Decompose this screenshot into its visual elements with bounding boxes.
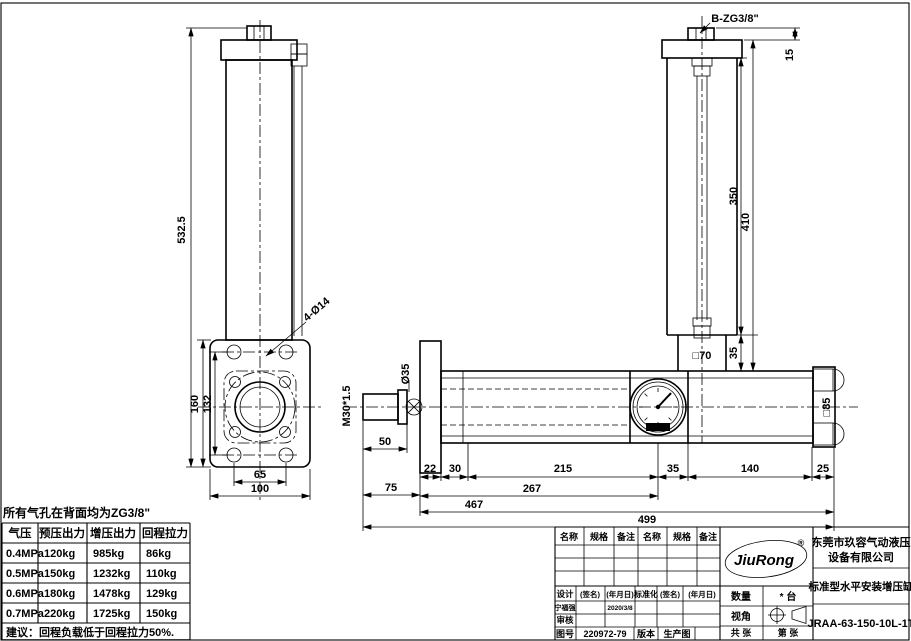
table-footer-note: 建议：回程负载低于回程拉力50%.	[6, 625, 174, 639]
dim-block-height: 35	[728, 347, 740, 359]
designer-name: 宁福强	[555, 603, 576, 612]
label-standardize: 标准化	[633, 589, 658, 599]
cushion-adjuster-top	[813, 369, 844, 391]
dim-215: 215	[554, 463, 572, 475]
svg-text:0.5MPa: 0.5MPa	[6, 568, 45, 580]
dim-467: 467	[465, 499, 483, 511]
svg-text:0.7MPa: 0.7MPa	[6, 608, 45, 620]
svg-text:110kg: 110kg	[146, 568, 177, 580]
svg-text:180kg: 180kg	[44, 588, 75, 600]
svg-text:86kg: 86kg	[146, 548, 171, 560]
sheet-border	[1, 3, 909, 640]
label-quantity: 数量	[731, 590, 751, 603]
table-row: 0.7MPa 220kg 1725kg 150kg	[6, 608, 177, 620]
label-tank-port: B-ZG3/8"	[711, 13, 758, 25]
parts-col-note: 备注	[698, 531, 717, 542]
label-audit: 审核	[556, 615, 574, 625]
svg-text:985kg: 985kg	[93, 548, 124, 560]
dim-overall-height: 532.5	[176, 216, 188, 244]
side-view: M30*1.5 Ø35 □85	[341, 13, 858, 531]
label-design: 设计	[556, 589, 574, 599]
cylinder-body	[226, 60, 292, 340]
label-version: 版本	[636, 628, 656, 639]
label-signature: (签名)	[580, 589, 600, 599]
dim-rod-diameter: Ø35	[400, 364, 412, 385]
svg-text:1725kg: 1725kg	[93, 608, 130, 620]
table-row: 0.5MPa 150kg 1232kg 110kg	[6, 568, 177, 580]
product-name: 标准型水平安装增压缸	[808, 580, 911, 593]
air-tank: □70	[662, 16, 742, 443]
drawing-no: 220972-79	[583, 629, 626, 639]
force-table: 气压 预压出力 增压出力 回程拉力 0.4MPa 120kg 985kg 86k…	[2, 523, 190, 640]
label-date: (年月日)	[688, 589, 716, 599]
port-note: 所有气孔在背面均为ZG3/8"	[3, 505, 150, 520]
dim-25: 25	[817, 463, 829, 475]
dim-75: 75	[385, 482, 397, 494]
svg-text:129kg: 129kg	[146, 588, 177, 600]
dim-50: 50	[379, 436, 391, 448]
dim-499: 499	[638, 514, 656, 526]
svg-text:120kg: 120kg	[44, 548, 75, 560]
registered-mark-icon: ®	[798, 538, 805, 548]
cushion-adjuster-bottom	[813, 423, 844, 445]
svg-text:150kg: 150kg	[44, 568, 75, 580]
parts-col-note: 备注	[616, 531, 635, 542]
svg-text:0.6MPa: 0.6MPa	[6, 588, 45, 600]
company-name-line2: 设备有限公司	[828, 550, 894, 564]
parts-col-name: 名称	[643, 531, 661, 542]
label-date: (年月日)	[606, 589, 634, 599]
company-name-line1: 东莞市玖容气动液压	[812, 535, 911, 549]
dim-tank-410: 410	[740, 213, 752, 231]
dim-35: 35	[667, 463, 679, 475]
parts-col-spec: 规格	[673, 531, 692, 542]
label-view-angle: 视角	[731, 610, 751, 623]
label-sheet-no: 第 张	[778, 627, 800, 638]
dim-tank-350: 350	[728, 187, 740, 205]
dim-bolt-holes: 4-Ø14	[301, 295, 333, 324]
cylinder-cap	[221, 40, 297, 60]
design-date: 2020/3/8	[607, 605, 633, 612]
dim-plate-width: 100	[251, 483, 269, 495]
col-pressure: 气压	[8, 526, 32, 540]
dim-port-height: 15	[784, 49, 796, 61]
first-angle-projection-icon	[768, 606, 806, 624]
label-total-sheets: 共 张	[731, 627, 753, 638]
parts-col-name: 名称	[560, 531, 578, 542]
parts-col-spec: 规格	[590, 531, 609, 542]
label-drawing-no: 图号	[556, 629, 574, 639]
gauge-label	[646, 423, 670, 431]
label-signature: (签名)	[660, 589, 680, 599]
logo-text: JiuRong	[734, 552, 794, 569]
model-number: JRAA-63-150-10L-1T	[808, 618, 911, 630]
dim-block-square: □70	[693, 350, 712, 362]
svg-text:220kg: 220kg	[44, 608, 75, 620]
elbow-fitting	[291, 44, 307, 54]
dim-30: 30	[449, 463, 461, 475]
col-boost: 增压出力	[90, 526, 136, 540]
quantity-value: * 台	[780, 590, 797, 603]
dim-plate-height: 160	[189, 395, 201, 413]
version: 生产图	[663, 628, 690, 639]
front-view: 532.5 160 132 65 100 4-Ø14	[176, 20, 333, 503]
drawing-sheet: 532.5 160 132 65 100 4-Ø14 M30*1.5 Ø35	[0, 0, 911, 641]
svg-text:150kg: 150kg	[146, 608, 177, 620]
svg-text:1232kg: 1232kg	[93, 568, 130, 580]
title-block: 名称 规格 备注 名称 规格 备注 设计 (签名) (年月日) 标准化 (签名)…	[555, 527, 911, 640]
dim-22: 22	[424, 463, 436, 475]
dim-140: 140	[741, 463, 759, 475]
company-logo: JiuRong ®	[723, 536, 809, 582]
table-row: 0.6MPa 180kg 1478kg 129kg	[6, 588, 177, 600]
svg-text:0.4MPa: 0.4MPa	[6, 548, 45, 560]
table-row: 0.4MPa 120kg 985kg 86kg	[6, 548, 171, 560]
dim-rod-thread: M30*1.5	[341, 386, 353, 427]
side-tube	[294, 66, 302, 336]
dim-cap-square: □85	[821, 398, 833, 417]
col-preload: 预压出力	[39, 526, 85, 540]
top-port-fitting	[247, 26, 271, 40]
dim-267: 267	[523, 483, 541, 495]
svg-text:1478kg: 1478kg	[93, 588, 130, 600]
dim-hole-spacing-v: 132	[202, 395, 214, 413]
col-return: 回程拉力	[142, 526, 188, 540]
dim-hole-spacing-h: 65	[254, 469, 266, 481]
